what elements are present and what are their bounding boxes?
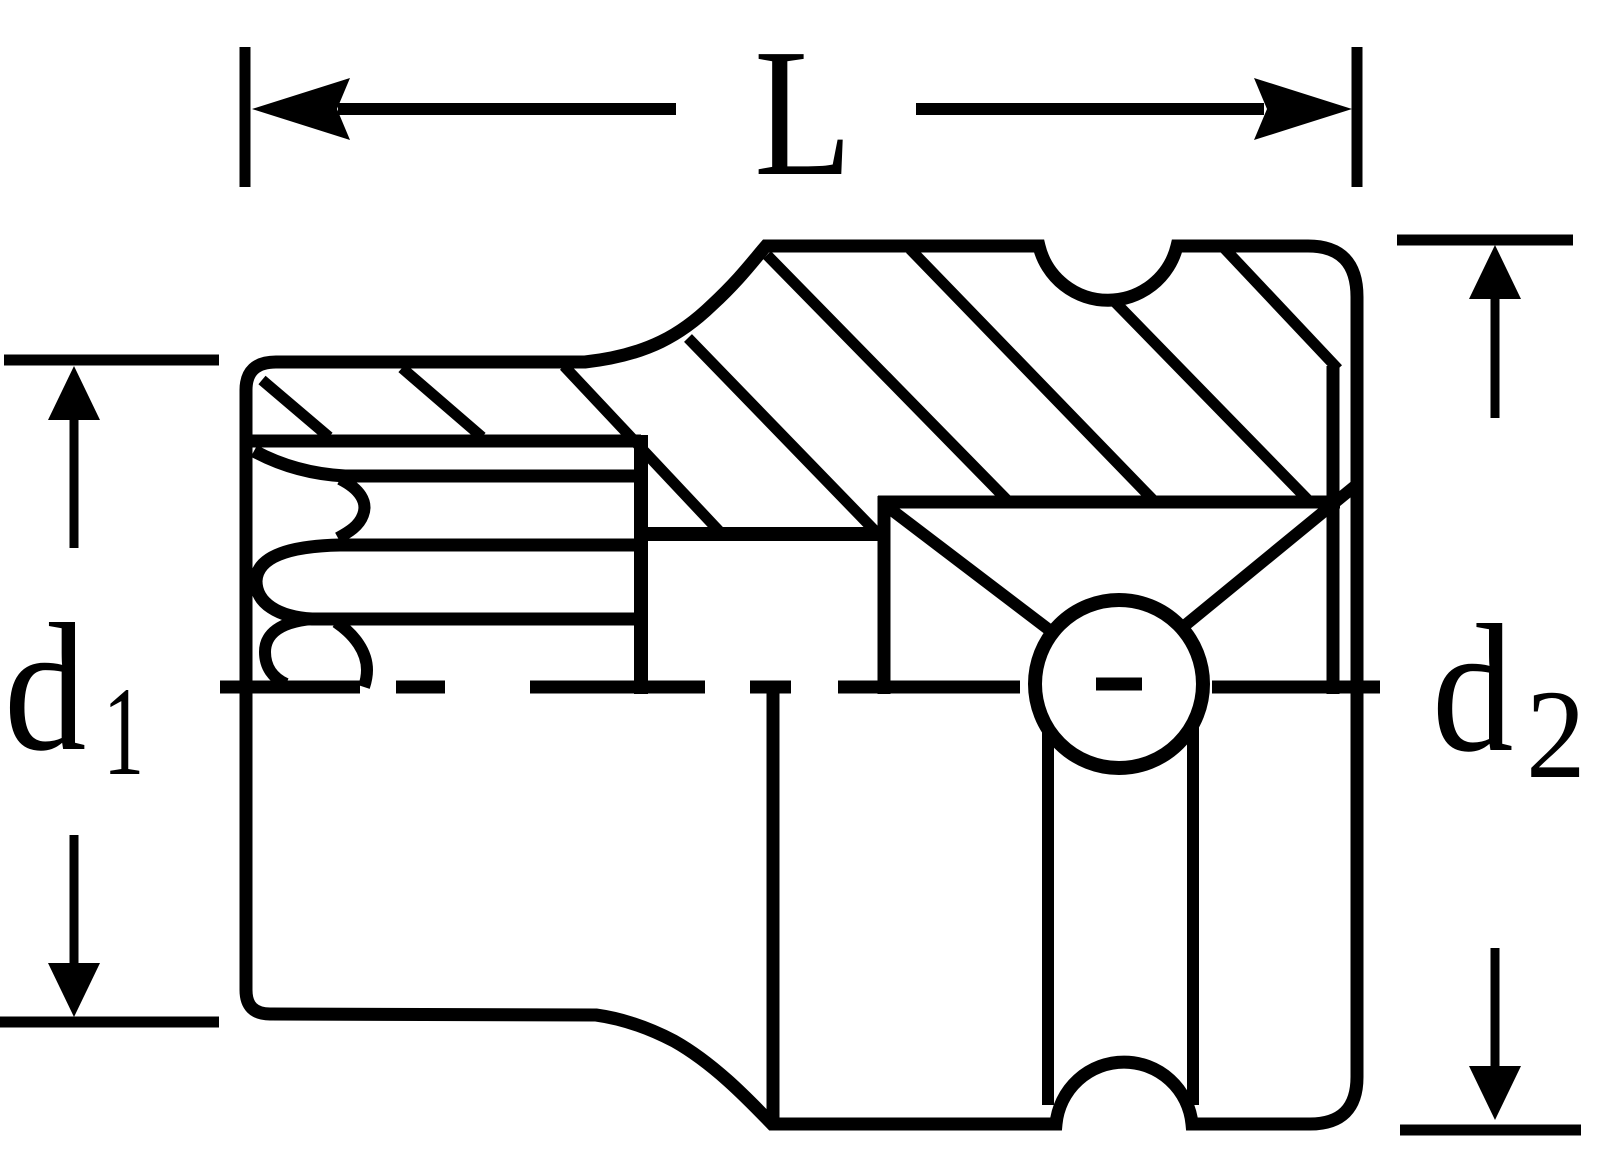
svg-text:d: d: [4, 586, 86, 789]
svg-text:1: 1: [103, 663, 144, 803]
svg-text:L: L: [754, 12, 852, 215]
svg-text:2: 2: [1526, 664, 1586, 805]
svg-text:d: d: [1432, 588, 1513, 790]
